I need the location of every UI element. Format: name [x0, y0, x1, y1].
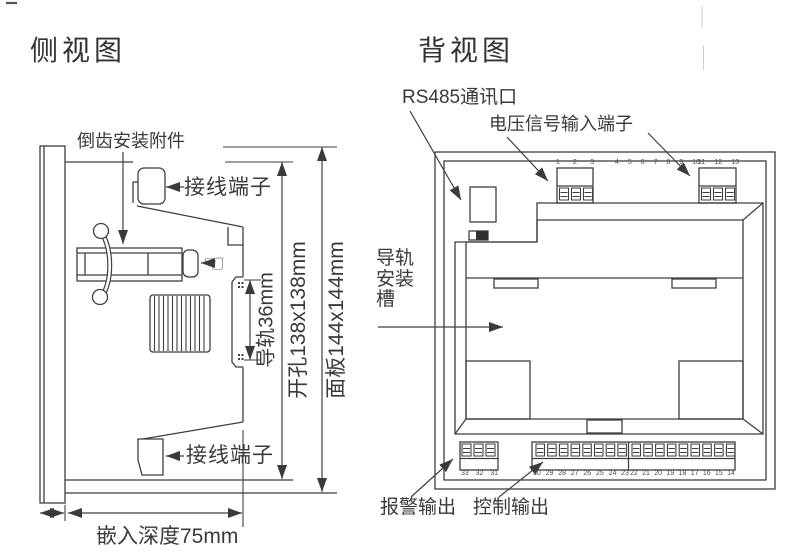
- voltage-input-label: 电压信号输入端子: [489, 114, 633, 135]
- rail-bracket: [232, 277, 244, 367]
- terminal-number: 32: [476, 470, 484, 478]
- terminal-number: 28: [558, 470, 566, 478]
- depth-dimension-label: 嵌入深度75mm: [96, 525, 238, 549]
- back-view-title: 背视图: [418, 35, 514, 67]
- terminal-number: 1: [556, 159, 560, 167]
- terminal-number: 27: [571, 470, 579, 478]
- terminal-number: 23: [621, 470, 629, 478]
- terminal-number: 26: [583, 470, 591, 478]
- module-tab: [494, 279, 538, 288]
- control-output-label: 控制输出: [473, 497, 549, 519]
- terminal-number: 15: [715, 470, 723, 478]
- terminal-number: 4: [615, 159, 619, 167]
- control-output-terminal: [532, 442, 735, 470]
- rail-dimension-label: 导轨36mm: [256, 272, 279, 368]
- terminal-number: 12: [714, 159, 722, 167]
- module-bottom-latch: [587, 420, 622, 433]
- terminal-number: 9: [679, 159, 683, 167]
- terminal-number: 14: [727, 470, 735, 478]
- top-wiring-terminal: [138, 168, 165, 204]
- vent-fins: [150, 295, 210, 352]
- rs485-port: [470, 187, 496, 222]
- clamp-handle-knob: [94, 224, 109, 239]
- terminal-number: 11: [698, 159, 705, 167]
- terminal-number: 2: [573, 159, 577, 167]
- voltage-input-terminal-left: [557, 168, 593, 203]
- dip-switch: [469, 231, 488, 240]
- terminal-number: 3: [590, 159, 594, 167]
- terminal-numbers-top-right: 11 12 13: [698, 159, 739, 167]
- terminal-number: 29: [546, 470, 554, 478]
- terminal-number: 13: [731, 159, 739, 167]
- voltage-input-arrow-left: [507, 137, 548, 181]
- terminal-number: 31: [490, 470, 498, 478]
- module-corner-block: [679, 361, 743, 419]
- case-inner-frame: [444, 161, 766, 480]
- alarm-output-arrow: [411, 459, 453, 497]
- module-tab: [672, 279, 716, 288]
- raised-module: [455, 203, 763, 434]
- cutout-dimension-label: 开孔138x138mm: [287, 241, 311, 399]
- terminal-numbers-top-middle: 4 5 6 7 8 9 10: [615, 159, 700, 167]
- terminal-number: 19: [666, 470, 674, 478]
- terminal-number: 33: [461, 470, 469, 478]
- terminal-number: 25: [596, 470, 604, 478]
- mount-accessory-label: 倒齿安装附件: [77, 131, 185, 152]
- screw-clamp: [77, 224, 198, 305]
- back-view-drawing: [378, 111, 775, 497]
- side-view-title: 侧视图: [30, 35, 126, 67]
- terminal-numbers-bottom-left: 33 32 31: [461, 470, 498, 478]
- terminal-number: 22: [630, 470, 638, 478]
- terminal-number: 5: [628, 159, 632, 167]
- clamp-screw-cap: [183, 250, 198, 277]
- terminal-number: 21: [642, 470, 650, 478]
- terminal-numbers-bottom-middle: 30 29 28 27 26 25 24 23: [533, 470, 629, 478]
- panel-dimension-label: 面板144x144mm: [325, 241, 349, 399]
- terminal-number: 17: [691, 470, 699, 478]
- terminal-number: 16: [703, 470, 711, 478]
- terminal-numbers-top-left: 1 2 3: [556, 159, 594, 167]
- terminal-top-label: 接线端子: [184, 176, 272, 200]
- voltage-input-terminal-right: [699, 168, 736, 203]
- hand-pointer-icon: ☜: [203, 250, 225, 279]
- terminal-number: 7: [654, 159, 658, 167]
- bottom-wiring-terminal: [138, 439, 163, 475]
- terminal-number: 8: [666, 159, 670, 167]
- module-corner-block: [466, 361, 530, 419]
- terminal-number: 6: [641, 159, 645, 167]
- terminal-bottom-label: 接线端子: [186, 444, 274, 468]
- diagram-stage: 侧视图 背视图 倒齿安装附件 接线端子 接线端子 嵌入深度75mm 导轨36mm…: [0, 0, 811, 556]
- voltage-input-arrow-right: [648, 133, 690, 176]
- terminal-numbers-bottom-right: 22 21 20 19 18 17 16 15 14: [630, 470, 735, 478]
- back-callout-arrows: [378, 111, 690, 497]
- scan-artifact: [702, 6, 704, 70]
- alarm-output-label: 报警输出: [380, 497, 456, 519]
- terminal-number: 30: [533, 470, 541, 478]
- terminal-number: 18: [679, 470, 687, 478]
- rs485-label: RS485通讯口: [402, 87, 517, 109]
- rail-slot-label: 导轨安装槽: [376, 249, 418, 311]
- alarm-output-terminal: [460, 442, 498, 470]
- terminal-number: 20: [654, 470, 662, 478]
- clamp-handle-knob: [93, 290, 108, 305]
- terminal-number: 24: [609, 470, 617, 478]
